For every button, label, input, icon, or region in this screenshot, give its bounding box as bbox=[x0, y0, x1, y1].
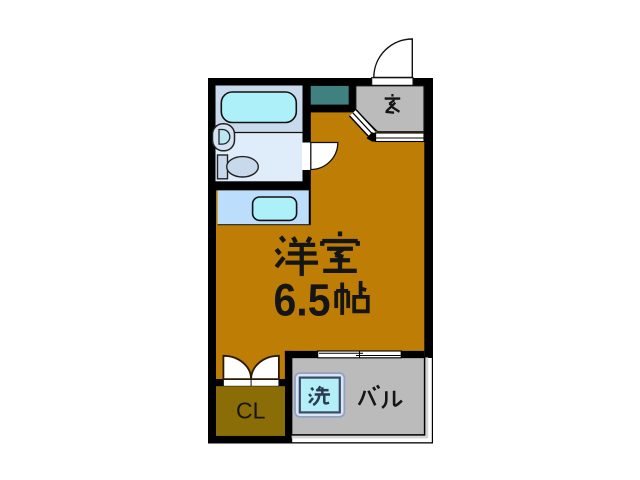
svg-text:6.5: 6.5 bbox=[274, 274, 331, 325]
svg-text:CL: CL bbox=[236, 397, 266, 423]
